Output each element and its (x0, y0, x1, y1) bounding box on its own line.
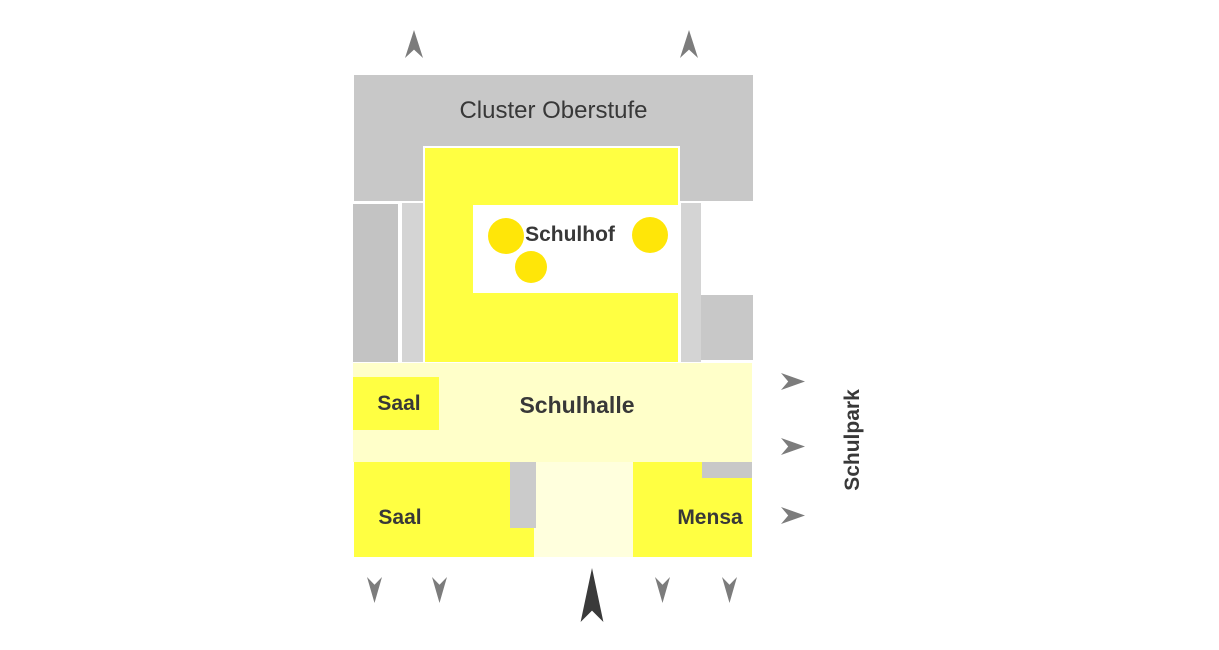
entrance-corridor (534, 462, 633, 557)
up-arrow-icon (405, 30, 423, 58)
mensa-gray-block (702, 462, 752, 478)
down-arrow-icon (722, 577, 737, 603)
right-wing-strip-light (681, 203, 701, 362)
left-wing-strip-dark (353, 204, 398, 362)
cluster-oberstufe-label: Cluster Oberstufe (354, 97, 753, 125)
schulpark-label: Schulpark (838, 380, 868, 500)
down-arrow-icon (367, 577, 382, 603)
saal-lower-label: Saal (360, 506, 440, 530)
down-arrow-icon (432, 577, 447, 603)
right-wing-block (701, 295, 753, 360)
right-arrow-icon (781, 373, 805, 390)
tree-icon (632, 217, 668, 253)
tree-icon (515, 251, 547, 283)
saal-lower-gray-block (510, 462, 536, 528)
site-plan-canvas: Cluster Oberstufe Schulhof Schulhalle Sa… (0, 0, 1219, 650)
right-arrow-icon (781, 507, 805, 524)
mensa-label: Mensa (660, 506, 760, 530)
up-arrow-icon (680, 30, 698, 58)
tree-icon (488, 218, 524, 254)
saal-upper-label: Saal (356, 392, 442, 416)
right-arrow-icon (781, 438, 805, 455)
left-wing-strip-light (402, 203, 423, 362)
down-arrow-icon (655, 577, 670, 603)
north-arrow-icon (577, 568, 607, 622)
schulhalle-label: Schulhalle (502, 392, 652, 419)
schulhof-label: Schulhof (520, 223, 620, 247)
